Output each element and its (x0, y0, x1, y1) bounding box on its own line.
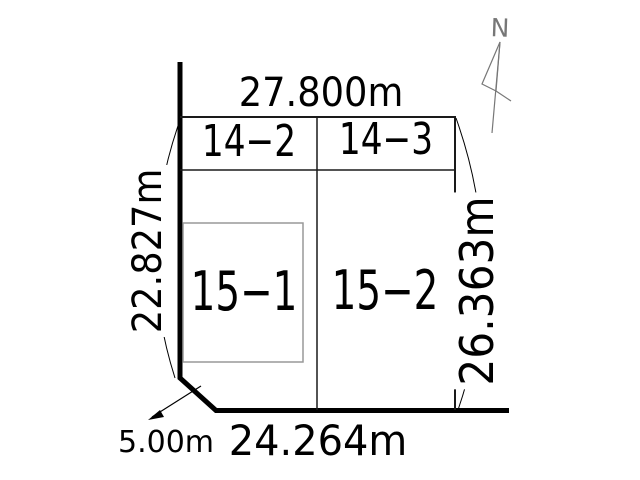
parcel-label-14-2: 14−2 (202, 120, 296, 164)
north-label: N (490, 15, 510, 41)
dimension-top: 27.800m (239, 73, 404, 113)
dimension-left: 22.827m (128, 165, 168, 337)
north-arrow-icon (482, 42, 511, 133)
parcel-label-15-1: 15−1 (191, 265, 298, 319)
dimension-right: 26.363m (454, 193, 500, 390)
parcel-label-15-2: 15−2 (332, 264, 439, 318)
dimension-bottom: 24.264m (229, 420, 407, 462)
dimension-corner-cut: 5.00m (118, 428, 214, 458)
plot-plan-canvas: 27.800m 22.827m 26.363m 24.264m 5.00m 14… (0, 0, 640, 480)
parcel-label-14-3: 14−3 (339, 118, 433, 162)
